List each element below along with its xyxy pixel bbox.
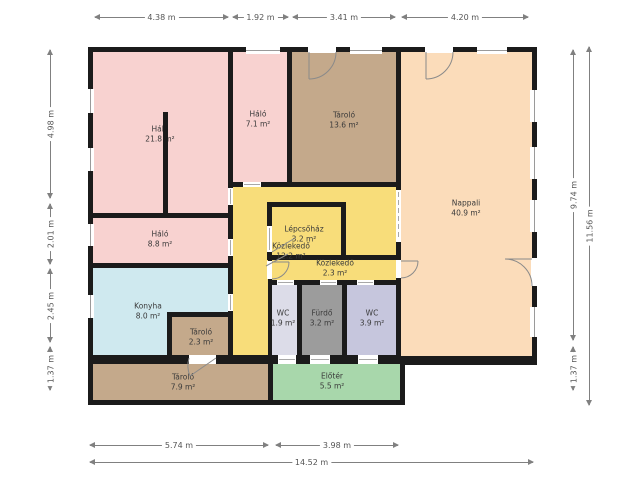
dim-right-3: 11.56 m	[589, 47, 590, 405]
room-label-tarolo-13: Tároló13.6 m²	[329, 110, 358, 130]
wall-halo21-stub	[163, 112, 168, 213]
door-gap-konyha	[228, 294, 233, 311]
room-kozlekedo-12-strip	[233, 187, 268, 355]
room-label-halo-8: Háló8.8 m²	[148, 229, 173, 249]
door-gap-tarolo79	[189, 355, 216, 364]
room-label-eloter: Előtér5.5 m²	[320, 371, 345, 391]
floor-plan: Háló 21.8 m² Háló7.1 m² Tároló13.6 m²	[0, 0, 640, 480]
window	[86, 224, 94, 246]
door-gap-wc2	[357, 280, 374, 285]
door-gap-wc1	[277, 280, 294, 285]
wall-below-lepcsohaz	[346, 255, 401, 260]
door-gap-wc2-eloter	[358, 355, 378, 364]
door-gap-kozlekedo2	[267, 261, 272, 279]
dim-left-4: 1.37 m	[50, 347, 51, 390]
dim-top-2: 1.92 m	[233, 17, 288, 18]
room-label-tarolo-79: Tároló7.9 m²	[171, 372, 196, 392]
room-label-kozlekedo-2: Közlekedő2.3 m²	[316, 258, 354, 278]
wall-tarolo2-top	[167, 312, 228, 317]
door-gap-halo8	[228, 239, 233, 256]
dim-bottom-2: 3.98 m	[276, 445, 398, 446]
dim-top-4: 4.20 m	[402, 17, 528, 18]
room-label-halo-21: Háló 21.8 m²	[145, 124, 174, 144]
window	[530, 90, 538, 122]
dim-bottom-3: 14.52 m	[90, 462, 533, 463]
dim-bottom-1: 5.74 m	[90, 445, 268, 446]
door-gap-halo7	[243, 182, 261, 187]
door-gap-nappali-right	[531, 258, 538, 286]
window	[86, 148, 94, 171]
window	[530, 307, 538, 337]
room-label-wc-1: WC1.9 m²	[271, 308, 296, 328]
dim-right-1: 9.74 m	[573, 50, 574, 340]
room-label-tarolo-2: Tároló2.3 m²	[189, 327, 214, 347]
dim-top-1: 4.38 m	[95, 17, 228, 18]
window	[246, 46, 280, 54]
window	[350, 46, 382, 54]
opening-kozlekedo-nappali	[396, 190, 401, 242]
room-label-kozlekedo-12: Közlekedő12.2 m²	[272, 241, 310, 261]
dim-left-1: 4.98 m	[50, 50, 51, 198]
dim-left-2: 2.01 m	[50, 204, 51, 264]
room-label-wc-2: WC3.9 m²	[360, 308, 385, 328]
door-gap-furdo-eloter	[310, 355, 330, 364]
door-gap-nappali-left	[396, 260, 401, 278]
window	[530, 200, 538, 232]
door-gap-nappali-top	[425, 46, 453, 53]
dim-top-3: 3.41 m	[293, 17, 395, 18]
wall-tarolo2-left	[167, 312, 172, 355]
door-gap-furdo	[320, 280, 337, 285]
room-label-halo-7: Háló7.1 m²	[246, 109, 271, 129]
window	[477, 46, 507, 54]
room-label-nappali: Nappali40.9 m²	[451, 198, 480, 218]
window	[530, 147, 538, 179]
door-gap-halo21	[228, 188, 233, 205]
door-gap-tarolo13-entrance	[308, 46, 336, 53]
dim-right-2: 1.37 m	[573, 347, 574, 390]
dim-left-3: 2.45 m	[50, 269, 51, 342]
window	[86, 89, 94, 113]
room-label-konyha: Konyha8.0 m²	[134, 301, 162, 321]
window	[86, 295, 94, 318]
door-gap-wc1-eloter	[278, 355, 296, 364]
room-label-furdo: Fürdő3.2 m²	[310, 308, 335, 328]
